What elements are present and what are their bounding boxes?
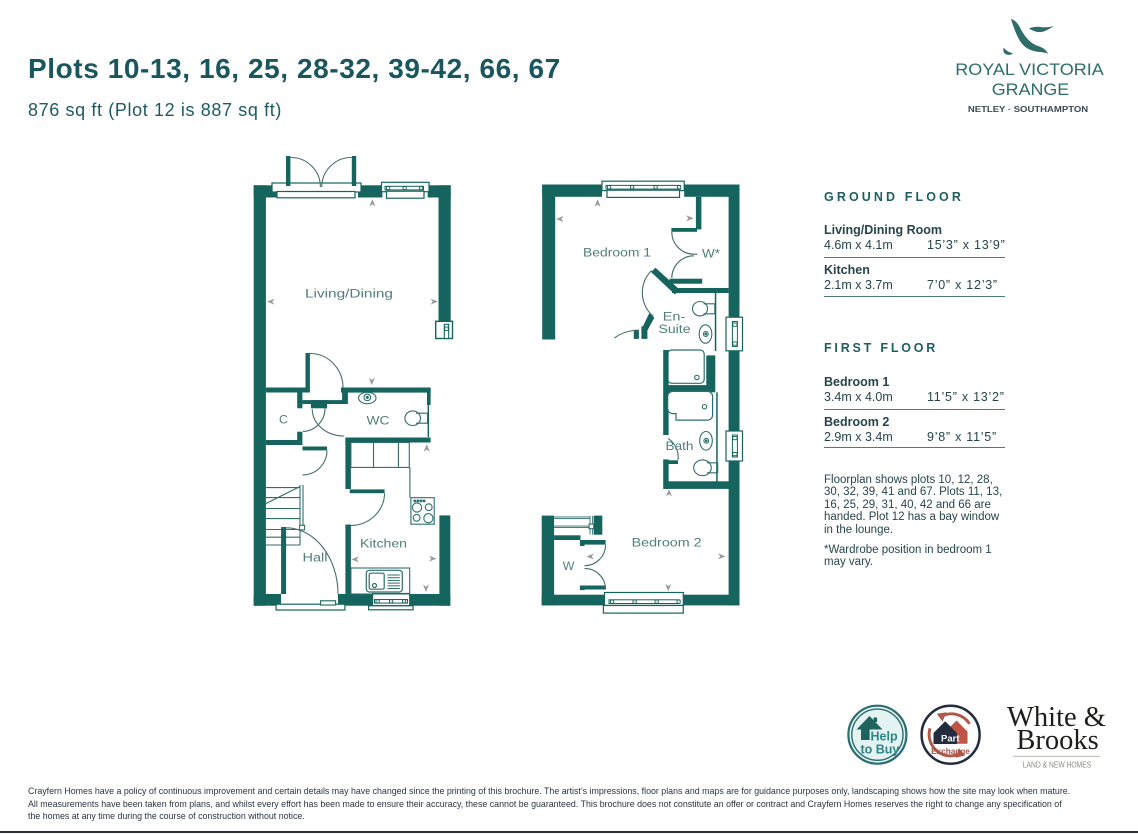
svg-text:C: C: [279, 413, 288, 427]
svg-text:Bedroom 1: Bedroom 1: [583, 246, 651, 260]
svg-text:NETLEY · SOUTHAMPTON: NETLEY · SOUTHAMPTON: [968, 105, 1089, 114]
svg-text:WC: WC: [367, 414, 390, 428]
svg-text:Brooks: Brooks: [1016, 725, 1098, 756]
svg-text:Exchange: Exchange: [931, 747, 970, 756]
svg-text:Part: Part: [941, 734, 960, 745]
svg-text:Suite: Suite: [659, 322, 691, 336]
svg-text:Bedroom 2: Bedroom 2: [632, 535, 702, 549]
svg-text:Help: Help: [871, 730, 898, 744]
svg-text:Kitchen: Kitchen: [360, 536, 407, 550]
svg-text:W: W: [563, 559, 575, 573]
svg-text:to Buy: to Buy: [861, 743, 900, 757]
svg-text:ROYAL VICTORIA: ROYAL VICTORIA: [955, 61, 1104, 79]
svg-text:Living/Dining: Living/Dining: [305, 287, 393, 301]
svg-text:Bath: Bath: [666, 439, 694, 453]
svg-text:LAND & NEW HOMES: LAND & NEW HOMES: [1023, 761, 1092, 770]
svg-text:GRANGE: GRANGE: [992, 81, 1070, 99]
svg-text:Hall: Hall: [303, 551, 328, 565]
svg-text:W*: W*: [702, 247, 720, 261]
